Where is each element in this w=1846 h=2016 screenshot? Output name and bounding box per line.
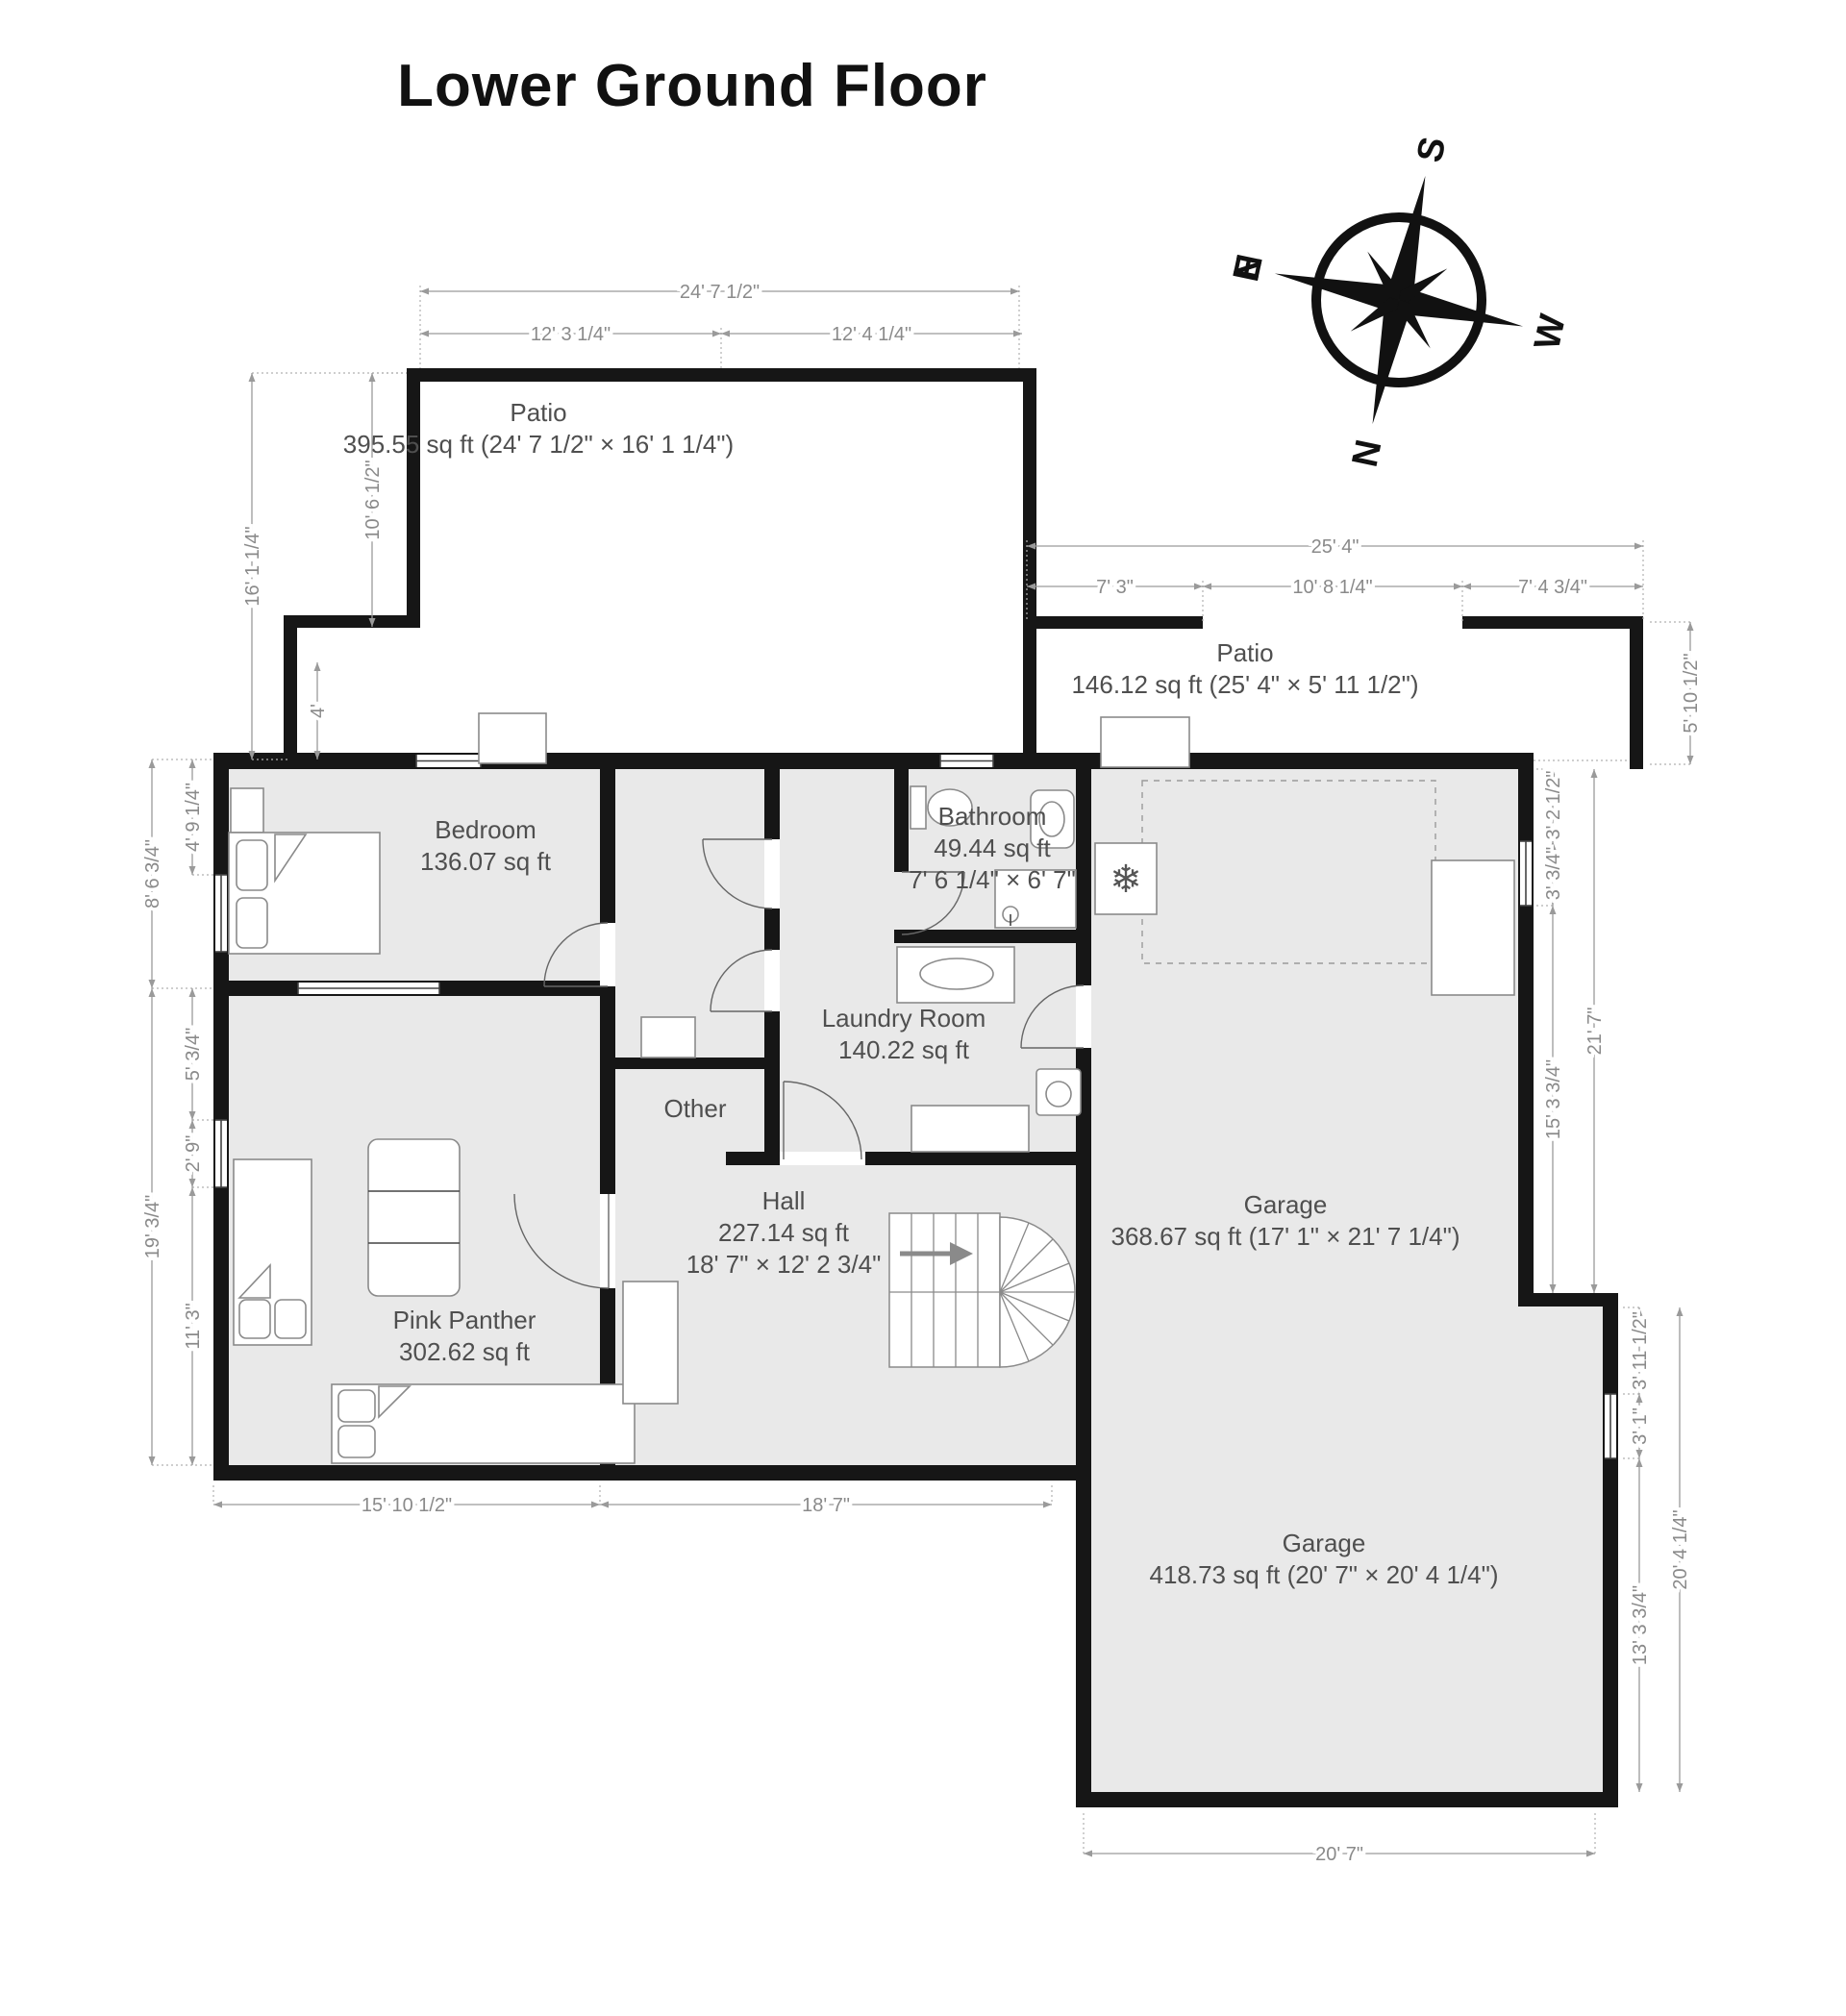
dimension-label: 18' 7" [802,1495,850,1516]
dimension-label: 21' 7" [1584,1008,1606,1056]
dimension: 5' 3/4" [183,988,204,1120]
dimension-label: 3' 11 1/2" [1630,1311,1651,1390]
window [1520,841,1532,906]
dimension: 7' 3" [1027,577,1203,598]
wall-segment [1076,753,1091,985]
dimension: 20' 7" [1084,1844,1595,1865]
wall-segment [1518,753,1534,1293]
dimension-label: 10' 6 1/2" [362,460,384,539]
nightstand [231,788,263,833]
hall-area: 227.14 sq ft [718,1218,850,1247]
window [1605,1394,1616,1458]
wall-segment [726,1152,780,1165]
compass-rose: N S W N N N [1194,101,1605,499]
dimension: 25' 4" [1027,536,1643,558]
dimension-label: 12' 4 1/4" [832,324,911,345]
bedroom-area: 136.07 sq ft [420,847,552,876]
dimension: 7' 4 3/4" [1462,577,1643,598]
floor-plan-page: Lower Ground Floor N S W N N N E N [0,0,1846,2011]
dimension: 5' 10 1/2" [1681,622,1702,764]
dimension: 8' 6 3/4" [142,759,163,988]
wall-segment [764,908,780,950]
dimension-label: 3' 2 1/2" [1543,770,1564,839]
wall-segment [1630,616,1643,769]
hall-cabinet [623,1282,678,1404]
bathroom-size: 7' 6 1/4" × 6' 7" [909,865,1076,894]
window [215,1120,227,1187]
dimension-label: 13' 3 3/4" [1630,1585,1651,1665]
dimension-label: 25' 4" [1311,536,1360,558]
dimension: 20' 4 1/4" [1670,1307,1691,1792]
garage-tank [1432,860,1514,995]
wall-segment [764,769,780,839]
dimension: 18' 7" [600,1495,1052,1516]
door-gap [600,923,615,986]
window [416,755,481,767]
wall-segment [213,753,1534,769]
dimension-label: 5' 10 1/2" [1681,653,1702,733]
door-gap [1076,985,1091,1048]
wall-segment [213,1465,1091,1481]
compass-letters: E [1226,252,1270,285]
dimension: 16' 1 1/4" [242,373,263,759]
floor-plan-svg: Lower Ground Floor N S W N N N E N [0,0,1846,2011]
corridor-shelf [641,1017,695,1058]
garage-upper-area: 368.67 sq ft (17' 1" × 21' 7 1/4") [1110,1222,1459,1251]
laundry-area: 140.22 sq ft [838,1035,970,1064]
wall-segment [1076,1048,1091,1807]
pillow [237,898,267,948]
shelf-sofa [368,1139,460,1296]
dimension: 15' 10 1/2" [213,1495,600,1516]
wall-segment [600,986,615,1194]
wall-segment [615,1058,780,1069]
dimension: 10' 8 1/4" [1203,577,1462,598]
dimension-label: 11' 3" [183,1303,204,1349]
dimension: 3' 1" [1630,1394,1651,1458]
compass-label-s: S [1409,134,1454,166]
dimension-label: 12' 3 1/4" [531,324,611,345]
door-gap [600,1194,615,1288]
laundry-counter-2 [911,1106,1029,1152]
stairs-straight-run [889,1213,1000,1367]
wall-segment [764,1011,780,1152]
bed-single-horizontal [332,1384,635,1463]
patio-right-area: 146.12 sq ft (25' 4" × 5' 11 1/2") [1071,670,1418,699]
garage-lower-label: Garage [1283,1529,1366,1557]
dimension-label: 7' 3" [1096,577,1134,598]
dimension: 10' 6 1/2" [362,373,384,627]
dimension-label: 5' 3/4" [183,1028,204,1081]
patio-right-label: Patio [1216,638,1273,667]
wall-segment [600,753,615,923]
pillow [275,1300,306,1338]
dimension: 13' 3 3/4" [1630,1458,1651,1792]
wall-segment [407,368,1036,382]
wall-segment [284,615,420,628]
dimension-label: 2' 9" [183,1135,204,1173]
wall-segment [865,1152,1091,1165]
patio-top-label: Patio [510,398,566,427]
bathroom-area: 49.44 sq ft [934,834,1051,862]
dimension-label: 20' 4 1/4" [1670,1509,1691,1589]
door-gap [780,1152,865,1165]
window [940,755,993,767]
dimension-label: 15' 3 3/4" [1543,1059,1564,1139]
compass-letter-e-top: E [1226,252,1270,285]
dimension: 24' 7 1/2" [420,282,1019,303]
hall-size: 18' 7" × 12' 2 3/4" [686,1250,882,1279]
staircase [889,1213,1075,1367]
dimension: 15' 3 3/4" [1543,906,1564,1293]
dimension-label: 24' 7 1/2" [680,282,760,303]
dimension-label: 19' 3/4" [142,1195,163,1259]
patio-step [479,713,546,763]
dimension-label: 16' 1 1/4" [242,526,263,606]
wall-segment [1076,1792,1618,1807]
dimension-label: 20' 7" [1315,1844,1363,1865]
hall-label: Hall [762,1186,806,1215]
patio-top-area: 395.55 sq ft (24' 7 1/2" × 16' 1 1/4") [343,430,734,459]
bathroom-label: Bathroom [938,802,1047,831]
pink-panther-area: 302.62 sq ft [399,1337,531,1366]
wall-segment [213,753,229,1481]
dimension-label: 7' 4 3/4" [1518,577,1587,598]
dimension-label: 10' 8 1/4" [1292,577,1372,598]
pink-panther-label: Pink Panther [393,1306,536,1334]
door-gap [764,839,780,908]
dimension: 3' 11 1/2" [1630,1307,1651,1394]
wall-segment [894,769,909,872]
laundry-label: Laundry Room [822,1004,986,1033]
wall-segment [1462,616,1643,629]
dimension: 4' [308,662,329,759]
pillow [237,840,267,890]
garage-upper-label: Garage [1244,1190,1328,1219]
dimension-label: 4' [308,704,329,718]
patio-chimney-box [1101,717,1189,767]
window [215,875,227,952]
laundry-basin [920,958,993,989]
dimension: 11' 3" [183,1187,204,1465]
compass-letter-n: N [1345,436,1390,471]
dimension: 3' 2 1/2" [1543,769,1564,841]
dimension-label: 3' 1" [1630,1407,1651,1445]
wall-segment [1023,368,1036,759]
dimension: 12' 4 1/4" [721,324,1022,345]
wall-segment [1023,616,1203,629]
freezer-icon: ❄ [1110,859,1142,901]
dimension: 19' 3/4" [142,988,163,1465]
dimension: 4' 9 1/4" [183,759,204,875]
page-title: Lower Ground Floor [397,53,987,119]
door-gap [764,950,780,1011]
dimension: 21' 7" [1584,769,1606,1293]
wall-segment [1603,1293,1618,1807]
washer-drum [1046,1082,1071,1107]
dimension-label: 3' 3/4" [1543,847,1564,900]
wall-segment [894,930,1091,943]
dimension: 12' 3 1/4" [420,324,721,345]
toilet-tank [911,786,926,829]
dimension-label: 4' 9 1/4" [183,783,204,852]
wall-segment [407,368,420,627]
dimension-label: 15' 10 1/2" [362,1495,452,1516]
dimension-label: 8' 6 3/4" [142,839,163,908]
pillow [338,1426,375,1457]
garage-lower-area: 418.73 sq ft (20' 7" × 20' 4 1/4") [1149,1560,1498,1589]
dimension: 3' 3/4" [1543,841,1564,906]
wall-segment [284,615,297,759]
pillow [239,1300,270,1338]
window [298,983,439,994]
bedroom-label: Bedroom [435,815,536,844]
other-label: Other [663,1094,726,1123]
compass-label-w-pos: W [1527,311,1574,353]
dimension: 2' 9" [183,1120,204,1187]
pillow [338,1390,375,1422]
